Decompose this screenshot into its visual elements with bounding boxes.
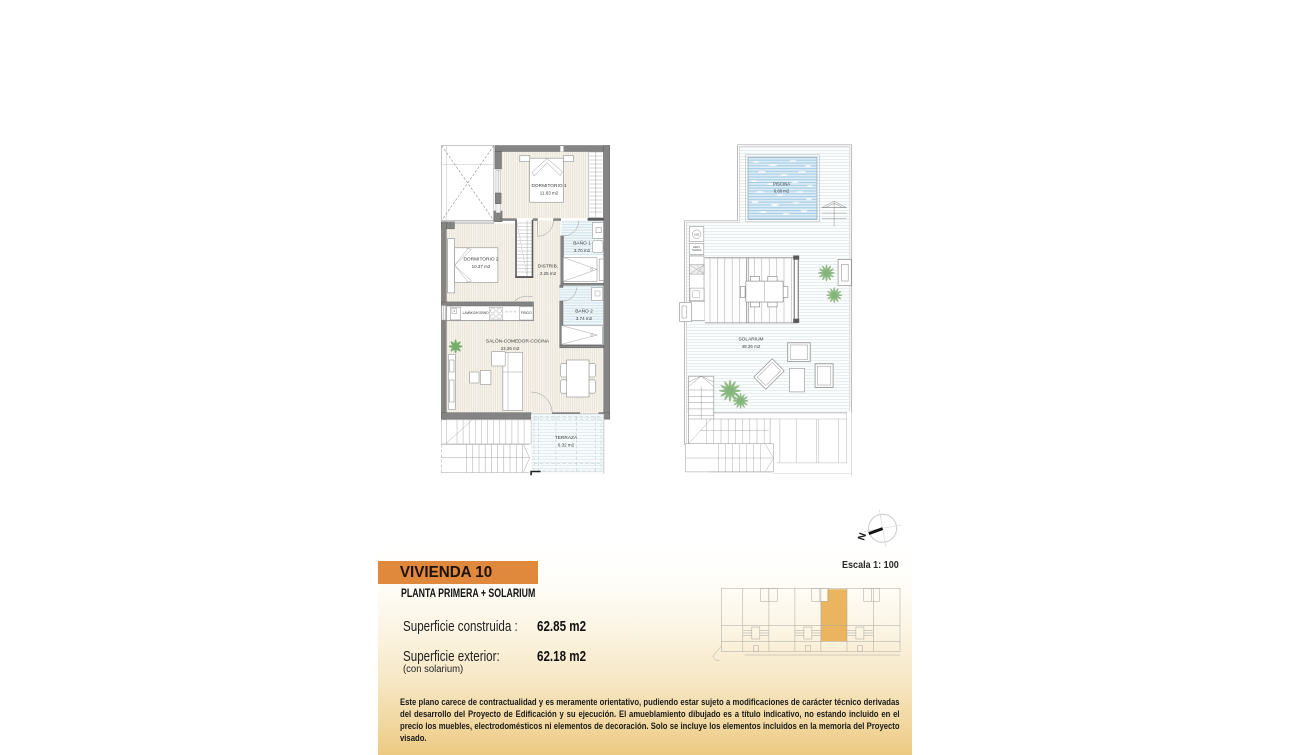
svg-text:LVD: LVD [694, 232, 699, 236]
svg-text:DORMITORIO 2: DORMITORIO 2 [463, 257, 498, 263]
svg-text:AERO: AERO [693, 245, 700, 249]
svg-text:23.26 m2: 23.26 m2 [501, 346, 520, 351]
svg-text:N: N [856, 532, 869, 542]
svg-text:3.70 m2: 3.70 m2 [574, 248, 591, 253]
svg-text:48.26 m2: 48.26 m2 [742, 344, 761, 349]
svg-text:3.74 m2: 3.74 m2 [576, 316, 593, 321]
svg-text:DISTRIB.: DISTRIB. [538, 264, 558, 270]
svg-text:TERMIA: TERMIA [692, 248, 702, 252]
svg-text:SOLARIUM: SOLARIUM [738, 337, 763, 343]
svg-text:6.32 m2: 6.32 m2 [558, 443, 575, 448]
svg-text:BAÑO 2: BAÑO 2 [575, 308, 593, 315]
svg-text:6.60 m2: 6.60 m2 [774, 189, 790, 194]
svg-text:FRIGO: FRIGO [521, 311, 532, 315]
svg-text:2.25 m2: 2.25 m2 [540, 271, 557, 276]
svg-text:BKG/KOBNO: BKG/KOBNO [468, 311, 489, 315]
svg-text:10.37 m2: 10.37 m2 [472, 264, 491, 269]
svg-text:BAÑO 1: BAÑO 1 [573, 240, 591, 247]
svg-text:PISCINA: PISCINA [773, 182, 790, 187]
svg-text:11.63 m2: 11.63 m2 [540, 190, 559, 195]
svg-text:SALÓN-COMEDOR-COCINA: SALÓN-COMEDOR-COCINA [486, 338, 550, 345]
svg-text:TERRAZA: TERRAZA [555, 435, 578, 441]
svg-text:DORMITORIO 1: DORMITORIO 1 [531, 183, 566, 189]
